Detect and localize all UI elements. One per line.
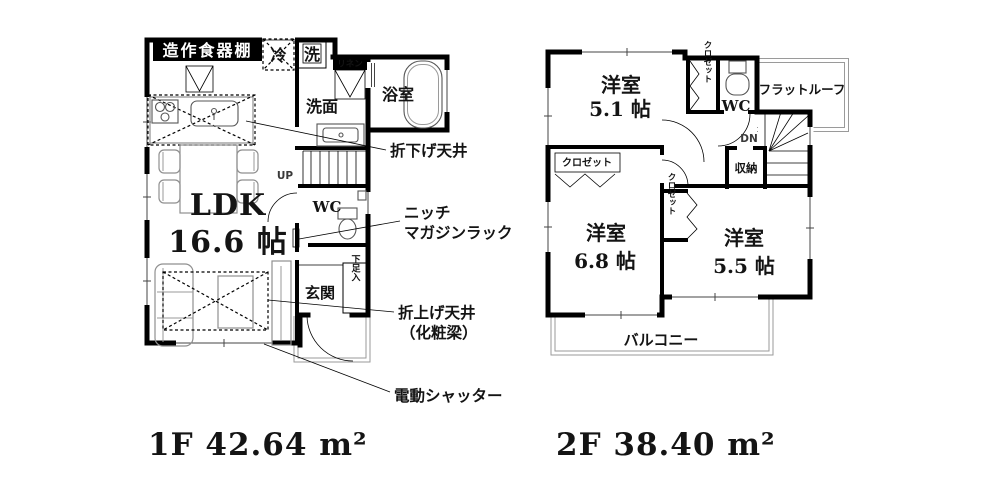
bedroom-b-size: 6.8 帖: [574, 249, 636, 273]
toilet-icon-1f: [338, 191, 366, 239]
bedroom-c-size: 5.5 帖: [713, 254, 775, 278]
floor1-title: 1F 42.64 m²: [148, 427, 368, 463]
balcony-label: バルコニー: [624, 331, 699, 349]
raised-ceiling-outline: [163, 272, 268, 330]
floor2-title: 2F 38.40 m²: [556, 427, 776, 463]
washroom-label: 洗面: [306, 97, 338, 116]
cupboard-label: 造作食器棚: [162, 41, 252, 60]
ldk-size-label: 16.6 帖: [168, 225, 288, 260]
bedroom-a-size: 5.1 帖: [589, 97, 651, 121]
leader-lowered-ceiling: [246, 121, 386, 150]
stairs-1f-icon: [303, 151, 368, 186]
annotation-raised-ceiling-2: （化粧梁）: [400, 323, 478, 342]
tv-board-icon: [272, 261, 291, 345]
bathroom-label: 浴室: [382, 85, 414, 104]
closet-c-icon: [687, 193, 697, 239]
shoe-cabinet-label: 下足入: [350, 254, 362, 282]
bedroom-c-label: 洋室: [724, 226, 764, 250]
stairs-up-label: UP: [277, 170, 294, 182]
annotation-raised-ceiling-1: 折上げ天井: [398, 303, 476, 322]
entrance-door-arc: [307, 316, 353, 361]
wc-label-1f: WC: [312, 198, 342, 216]
storage-label: 収納: [735, 161, 758, 175]
closet-a-icon: [690, 61, 699, 110]
floorplan-canvas: 造作食器棚 冷 洗 リネン 洗面 浴: [0, 0, 1000, 480]
bedroom-a-door-arc: [662, 120, 704, 162]
linen-label: リネン: [337, 59, 363, 70]
stairs-down-label: DN: [740, 133, 758, 145]
ldk-label: LDK: [190, 188, 266, 223]
annotation-lowered-ceiling: 折下げ天井: [390, 141, 468, 160]
linen-cabinet-icon: [335, 70, 365, 99]
wc-label-2f: WC: [721, 97, 751, 115]
annotation-electric-shutter: 電動シャッター: [394, 386, 503, 405]
cupboard-door-icon: [186, 66, 213, 92]
wc-door-arc-1f: [268, 193, 297, 222]
floor-plan-2f: フラットルーフ バルコニー: [544, 40, 849, 463]
porch-outline-1f: [294, 316, 370, 362]
vanity-icon: [317, 124, 364, 146]
bedroom-a-label: 洋室: [601, 73, 641, 97]
closet-a-label: クロゼット: [702, 40, 712, 83]
floorplan-page: 造作食器棚 冷 洗 リネン 洗面 浴: [0, 0, 1000, 480]
annotation-niche-2: マガジンラック: [404, 223, 513, 242]
floor-plan-1f: 造作食器棚 冷 洗 リネン 洗面 浴: [143, 37, 513, 464]
closet-c-label: クロゼット: [666, 172, 676, 215]
kitchen-counter-icon: [148, 95, 255, 145]
leader-shutter: [264, 344, 390, 392]
fridge-label: 冷: [270, 46, 286, 65]
washer-label: 洗: [304, 45, 320, 64]
closet-b-label: クロゼット: [562, 156, 612, 169]
sofa-icon: [155, 264, 193, 346]
flat-roof-label: フラットルーフ: [759, 82, 846, 97]
toilet-icon-2f: [726, 61, 749, 95]
leader-niche: [299, 221, 400, 239]
entrance-label: 玄関: [305, 284, 335, 302]
bedroom-b-label: 洋室: [586, 221, 626, 245]
annotations-1f: 折下げ天井 ニッチ マガジンラック 折上げ天井 （化粧梁） 電動シャッター: [246, 121, 513, 405]
annotation-niche-1: ニッチ: [404, 203, 451, 222]
